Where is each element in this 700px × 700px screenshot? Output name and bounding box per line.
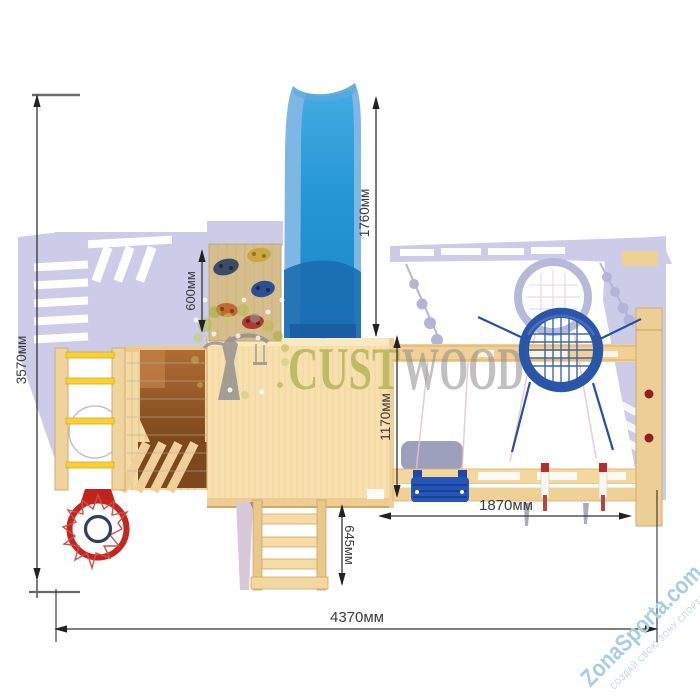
dim-label-600: 600мм — [183, 271, 198, 311]
dim-label-1760: 1760мм — [357, 189, 372, 238]
playground-top-view-render: CUST WOOD — [0, 0, 700, 700]
dim-label-3570: 3570мм — [14, 336, 29, 385]
deck-section — [118, 346, 210, 493]
dim-label-4370: 4370мм — [330, 609, 384, 626]
dim-label-645: 645мм — [342, 525, 357, 565]
brand-text-wood: WOOD — [402, 336, 524, 402]
brand-text-cust: CUST — [288, 336, 400, 402]
dim-label-1870: 1870мм — [479, 497, 533, 514]
site-watermark: ZonaSporta.com СОЗДАЙ СВОЮ ЗОНУ СПОРТА — [576, 560, 700, 692]
site-watermark-name: ZonaSporta.com — [576, 560, 700, 692]
frame-post — [636, 308, 662, 526]
dim-label-1170: 1170мм — [378, 393, 393, 441]
swedish-wall — [55, 348, 125, 490]
access-ladder — [236, 500, 328, 590]
basketball-hoop — [63, 489, 127, 568]
slide — [284, 83, 361, 339]
render-canvas: CUST WOOD — [0, 0, 700, 700]
